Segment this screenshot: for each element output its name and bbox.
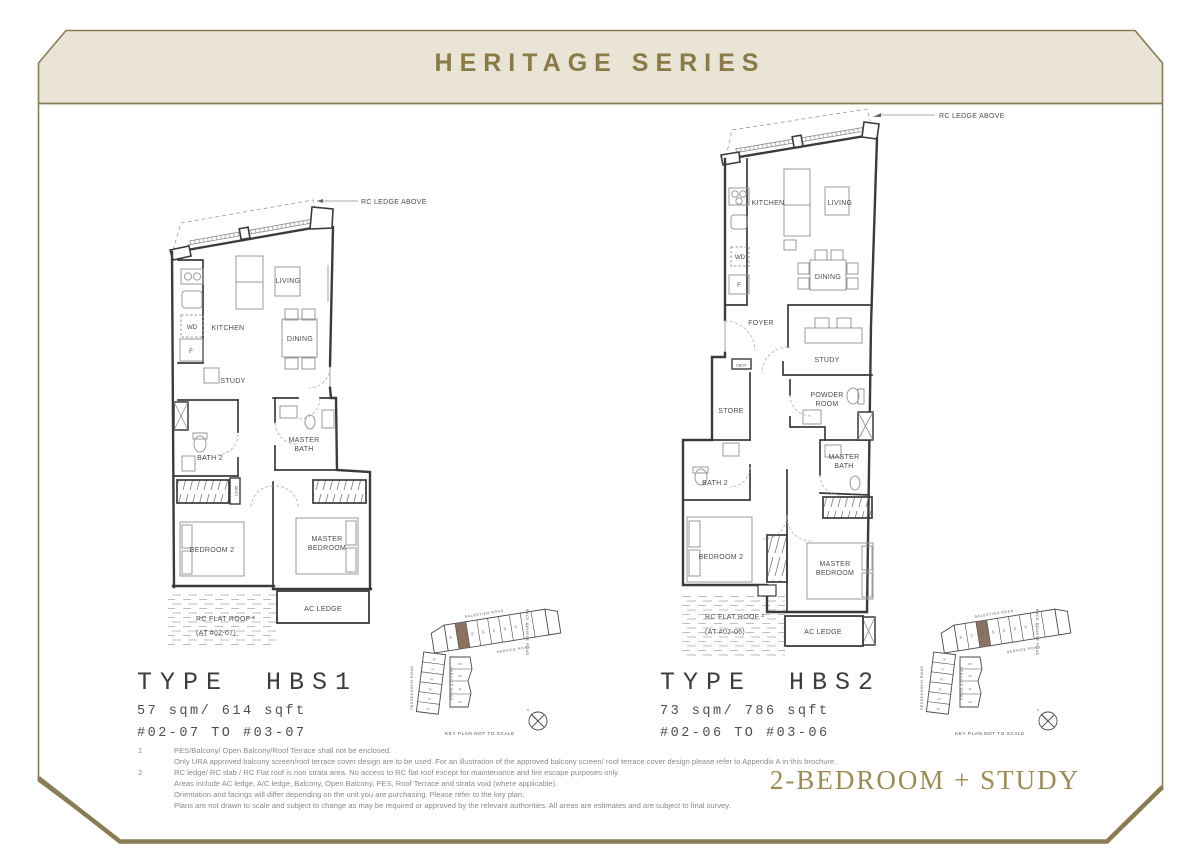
road-label-balestier: BALESTIER ROAD [975,609,1014,619]
unit-number: 16 [940,677,944,681]
room-label-master-bedroom-2: BEDROOM [308,545,346,552]
window-band [733,127,866,158]
unit-number: 11 [968,687,971,691]
label-rc-flat-roof-2: (AT #02-06) [705,629,745,636]
footnote-row: 1 PES/Balcony/ Open Balcony/Roof Terrace… [138,745,1093,756]
room-label-foyer: FOYER [748,320,774,327]
unit-number: 03 [503,627,508,631]
keyplan-hbs2: 08 07 06 05 04 03 02 01 BALESTIER ROAD S… [918,595,1103,750]
unit-number: 18 [942,657,946,661]
keyplan-left-column: 18 17 16 15 14 13 [926,652,955,714]
wall-pier-right [310,207,333,229]
room-label-f: F [189,348,193,355]
room-label-living: LIVING [276,278,301,285]
road-label-tessensohn: TESSENSOHN ROAD [920,665,924,710]
footnote-number: 2 [138,767,174,778]
keyplan-left-column: 18 17 16 15 14 13 [416,652,445,714]
wardrobes [732,359,872,596]
unit-number: 02 [1024,625,1029,629]
unit-number: 06 [470,632,475,636]
type-area-hbs1: 57 sqm/ 614 sqft [137,704,358,719]
room-label-bath2: BATH 2 [197,455,223,462]
unit-number: 04 [1002,628,1007,632]
unit-number: 03 [1013,627,1018,631]
unit-number: 09 [968,662,972,666]
living-dining-furniture [784,169,862,343]
label-rc-flat-roof-2: (AT #02-07) [196,630,236,637]
room-label-powder-1: POWDER [810,392,843,399]
unit-number: 15 [938,687,942,691]
footnote-number [138,800,174,811]
type-title-hbs1: TYPE HBS1 [137,668,358,697]
room-label-study: STUDY [220,378,245,385]
type-title-hbs2: TYPE HBS2 [660,668,881,697]
wardrobes [177,478,366,504]
room-label-master-bedroom-2: BEDROOM [816,570,854,577]
footnote-number: 1 [138,745,174,756]
room-label-master-bath-1: MASTER [829,454,860,461]
room-label-dbst: DB/ST [736,364,747,368]
room-label-bedroom2: BEDROOM 2 [699,554,744,561]
keyplan-hbs1: 08 07 06 05 04 03 02 01 BALESTIER ROAD S… [408,595,593,750]
rc-ledge-label: RC LEDGE ABOVE [361,199,427,206]
type-block-hbs1: TYPE HBS1 57 sqm/ 614 sqft #02-07 TO #03… [137,668,358,741]
label-rc-flat-roof-1: RC FLAT ROOF ² [705,614,765,621]
footnote-text: Plans are not drawn to scale and subject… [174,800,1093,811]
label-ac-ledge: AC LEDGE [304,606,342,613]
room-label-living: LIVING [828,200,853,207]
unit-number: 16 [430,677,434,681]
window-band [187,219,313,250]
unit-number: 11 [458,687,461,691]
unit-number: 13 [936,707,940,711]
kitchen-fixtures [729,188,749,294]
page-title: HERITAGE SERIES [0,49,1200,78]
keyplan-caption: KEY PLAN NOT TO SCALE [955,731,1025,736]
footnote-number [138,789,174,800]
type-units-hbs1: #02-07 TO #03-07 [137,726,358,741]
footnote-number [138,778,174,789]
room-label-master-bath-2: BATH [834,463,853,470]
rc-ledge-label: RC LEDGE ABOVE [939,113,1005,120]
road-label-service-2: SERVICE ROAD [959,667,963,701]
label-rc-flat-roof-1: RC FLAT ROOF ² [196,616,256,623]
keyplan-top-band: 08 07 06 05 04 03 02 01 BALESTIER ROAD S… [939,600,1072,663]
unit-number: 04 [492,628,497,632]
room-label-master-bedroom-1: MASTER [312,536,343,543]
road-label-balestier: BALESTIER ROAD [465,609,504,619]
compass-north: N [527,708,529,712]
room-label-powder-2: ROOM [816,401,839,408]
type-units-hbs2: #02-06 TO #03-06 [660,726,881,741]
type-block-hbs2: TYPE HBS2 73 sqm/ 786 sqft #02-06 TO #03… [660,668,881,741]
room-label-master-bedroom-1: MASTER [820,561,851,568]
label-ac-ledge: AC LEDGE [804,629,842,636]
unit-number: 15 [428,687,432,691]
room-label-dining: DINING [287,336,313,343]
footnote-text: PES/Balcony/ Open Balcony/Roof Terrace s… [174,745,1093,756]
room-label-dining: DINING [815,274,841,281]
keyplan-caption: KEY PLAN NOT TO SCALE [445,731,515,736]
room-label-store: STORE [718,408,744,415]
compass-north: N [1037,708,1039,712]
road-label-race-course: RACE COURSE ROAD [525,609,529,656]
unit-number: 17 [431,667,435,671]
room-label-bath2: BATH 2 [702,480,728,487]
unit-number: 02 [514,625,519,629]
unit-number: 14 [937,697,941,701]
road-label-service-2: SERVICE ROAD [449,667,453,701]
unit-number: 10 [968,674,972,678]
room-label-kitchen: KITCHEN [752,200,785,207]
unit-number: 18 [432,657,436,661]
footnote-number [138,756,174,767]
unit-number: 12 [458,700,462,704]
room-label-bedroom2: BEDROOM 2 [190,547,235,554]
unit-number: 12 [968,700,972,704]
unit-number: 08 [958,635,963,639]
category-label: 2-BEDROOM + STUDY [755,765,1095,796]
room-label-master-bath-1: MASTER [289,437,320,444]
room-label-f: F [737,282,741,289]
compass: N [527,708,547,730]
shaft [174,402,188,430]
unit-number: 17 [941,667,945,671]
room-label-wd: WD [187,324,198,331]
rc-flat-roof-area [681,593,785,657]
room-label-master-bath-2: BATH [294,446,313,453]
room-label-dbst: DB/ST [234,486,238,497]
unit-number: 05 [991,630,996,634]
unit-number: 05 [481,630,486,634]
outer-walls [172,227,371,589]
unit-number: 09 [458,662,462,666]
unit-number: 07 [969,634,974,638]
compass: N [1037,708,1057,730]
brochure-page: HERITAGE SERIES RC LEDGE ABOVE [0,0,1200,857]
footnote-row: Plans are not drawn to scale and subject… [138,800,1093,811]
type-area-hbs2: 73 sqm/ 786 sqft [660,704,881,719]
road-label-tessensohn: TESSENSOHN ROAD [410,665,414,710]
living-dining-furniture [236,256,317,369]
unit-number: 13 [426,707,430,711]
unit-number: 14 [427,697,431,701]
room-label-study: STUDY [814,357,839,364]
road-label-race-course: RACE COURSE ROAD [1035,609,1039,656]
room-label-wd: WD [735,254,746,261]
unit-number: 08 [448,635,453,639]
room-label-kitchen: KITCHEN [212,325,245,332]
wall-pier-right [862,122,879,139]
keyplan-top-band: 08 07 06 05 04 03 02 01 BALESTIER ROAD S… [429,600,562,663]
unit-number: 10 [458,674,462,678]
